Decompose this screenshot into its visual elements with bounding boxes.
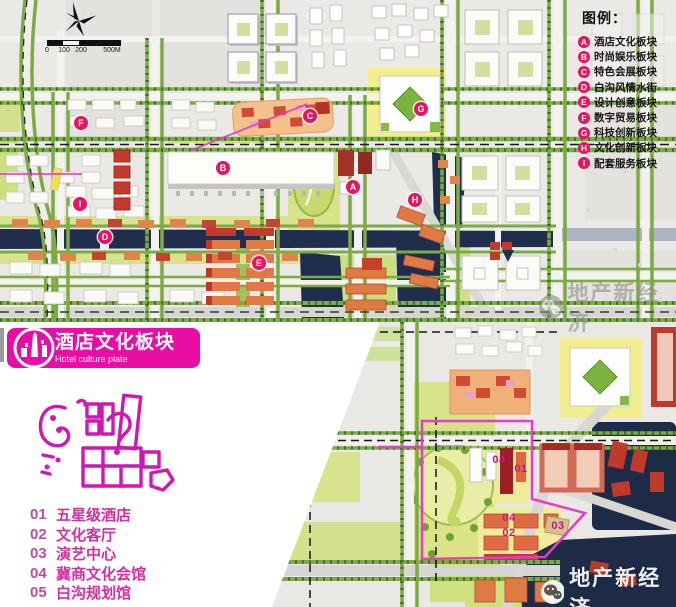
edge-tab: [0, 328, 4, 362]
legend-title: 图例：: [582, 8, 674, 28]
detail-label-01: 01: [514, 463, 527, 475]
map-marker-F: F: [74, 116, 88, 130]
legend-badge: H: [578, 142, 590, 154]
legend-badge: E: [578, 96, 590, 108]
scale-label: 500M: [103, 47, 121, 54]
map-marker-B: B: [216, 161, 230, 175]
legend-item-B: B时尚娱乐板块: [578, 49, 674, 64]
scale-bar: [47, 40, 121, 46]
detail-label-02: 02: [502, 527, 515, 539]
plate-item-label: 演艺中心: [56, 543, 116, 564]
planning-map-screenshot: 图例： A酒店文化板块B时尚娱乐板块C特色会展板块D白沟风情水街E设计创意板块F…: [0, 0, 676, 607]
plate-title: 酒店文化板块: [55, 333, 175, 352]
legend-label: 时尚娱乐板块: [594, 49, 657, 64]
legend: 图例： A酒店文化板块B时尚娱乐板块C特色会展板块D白沟风情水街E设计创意板块F…: [578, 6, 674, 171]
legend-item-C: C特色会展板块: [578, 64, 674, 79]
plate-item-number: 05: [30, 584, 56, 601]
plate-item-number: 02: [30, 526, 56, 543]
legend-badge: F: [578, 112, 590, 124]
detail-tech-square: [570, 348, 630, 406]
wechat-icon: [540, 579, 564, 605]
watermark-text: 地产新经济: [569, 562, 676, 607]
legend-label: 设计创意板块: [594, 95, 657, 110]
wechat-icon: [538, 294, 563, 320]
plate-list-item-02: 02文化客厅: [30, 525, 146, 545]
plate-item-number: 03: [30, 545, 56, 562]
plate-list-item-03: 03演艺中心: [30, 544, 146, 564]
legend-item-D: D白沟风情水街: [578, 80, 674, 95]
plate-item-number: 04: [30, 565, 56, 582]
tech-block-G: [380, 76, 440, 132]
plate-list-item-01: 01五星级酒店: [30, 505, 146, 525]
legend-item-F: F数字贸易板块: [578, 110, 674, 125]
plate-item-number: 01: [30, 506, 56, 523]
legend-label: 文化创新板块: [594, 140, 657, 155]
legend-label: 白沟风情水街: [594, 80, 657, 95]
plate-item-label: 冀商文化会馆: [56, 563, 146, 584]
map-marker-G: G: [414, 102, 428, 116]
salmon-courtyards: [542, 443, 602, 490]
legend-badge: A: [578, 36, 590, 48]
watermark-text: 地产新经济: [568, 277, 676, 337]
plate-item-label: 五星级酒店: [56, 504, 131, 525]
legend-label: 数字贸易板块: [594, 110, 657, 125]
plate-banner: 酒店文化板块 Hotel culture plate: [7, 328, 200, 368]
concept-sketch: [25, 388, 195, 503]
legend-badge: B: [578, 51, 590, 63]
tower-icon: [11, 325, 57, 371]
map-marker-E: E: [252, 256, 266, 270]
map-marker-H: H: [408, 193, 422, 207]
watermark: 地产新经济: [540, 562, 676, 607]
detail-label-04: 04: [502, 512, 515, 524]
legend-label: 配套服务板块: [594, 156, 657, 171]
plate-subtitle: Hotel culture plate: [55, 355, 175, 364]
detail-red-strip: [450, 370, 530, 414]
map-marker-D: D: [98, 230, 112, 244]
red-courtyard-ne: [654, 330, 676, 404]
plate-list-item-04: 04冀商文化会馆: [30, 564, 146, 584]
legend-item-I: I配套服务板块: [578, 156, 674, 171]
legend-badge: C: [578, 66, 590, 78]
legend-badge: D: [578, 81, 590, 93]
plate-list: 01五星级酒店02文化客厅03演艺中心04冀商文化会馆05白沟规划馆: [30, 505, 146, 603]
detail-label-03: 03: [551, 520, 564, 532]
legend-badge: G: [578, 127, 590, 139]
legend-items: A酒店文化板块B时尚娱乐板块C特色会展板块D白沟风情水街E设计创意板块F数字贸易…: [578, 34, 674, 171]
legend-item-A: A酒店文化板块: [578, 34, 674, 49]
map-marker-C: C: [303, 109, 317, 123]
legend-badge: I: [578, 157, 590, 169]
legend-label: 特色会展板块: [594, 64, 657, 79]
watermark: 地产新经济: [538, 277, 676, 337]
map-marker-I: I: [73, 197, 87, 211]
plate-list-item-05: 05白沟规划馆: [30, 583, 146, 603]
map-marker-A: A: [346, 180, 360, 194]
master-plan-map: [0, 0, 676, 322]
scale-label: 200: [75, 47, 87, 54]
detail-label-04: 04: [492, 454, 505, 466]
scale-label: 100: [58, 47, 70, 54]
scale-label: 0: [45, 47, 49, 54]
plate-item-label: 文化客厅: [56, 524, 116, 545]
legend-item-E: E设计创意板块: [578, 95, 674, 110]
legend-item-G: G科技创新板块: [578, 125, 674, 140]
legend-label: 酒店文化板块: [594, 34, 657, 49]
legend-item-H: H文化创新板块: [578, 140, 674, 155]
exhibition-strip-C: [232, 98, 334, 137]
legend-label: 科技创新板块: [594, 125, 657, 140]
plate-item-label: 白沟规划馆: [56, 582, 131, 603]
